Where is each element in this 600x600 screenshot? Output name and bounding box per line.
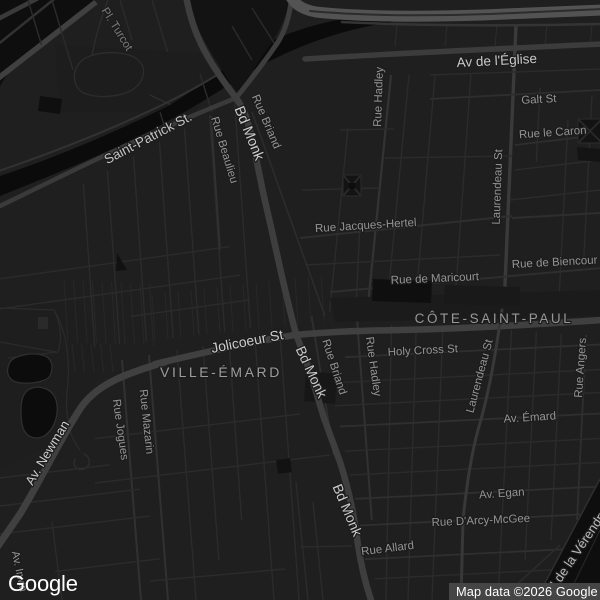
svg-text:Galt St: Galt St — [521, 93, 558, 107]
svg-text:CÔTE-SAINT-PAUL: CÔTE-SAINT-PAUL — [415, 311, 574, 326]
svg-text:VILLE-ÉMARD: VILLE-ÉMARD — [160, 364, 282, 380]
svg-text:Map data ©2026 Google: Map data ©2026 Google — [456, 584, 598, 599]
svg-text:Google: Google — [8, 571, 78, 596]
svg-text:Rue Hadley: Rue Hadley — [372, 66, 386, 127]
